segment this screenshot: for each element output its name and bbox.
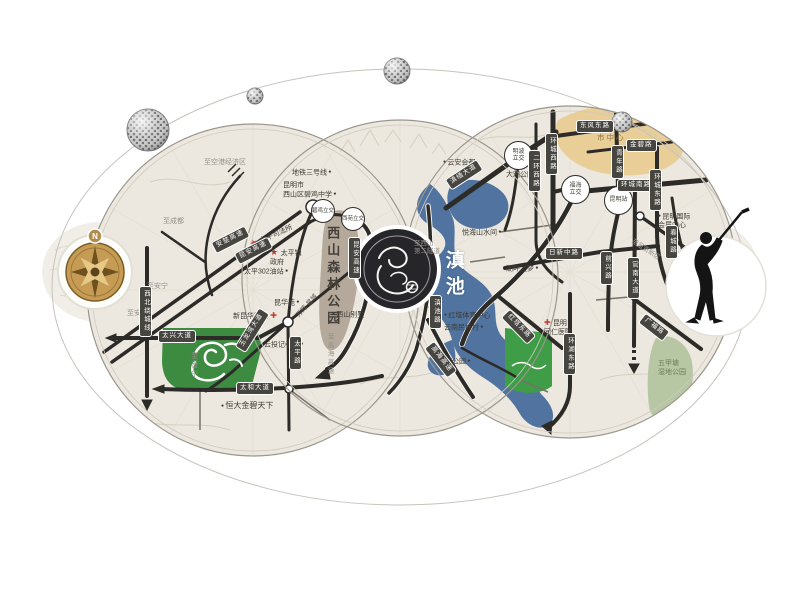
poi-kunhua-yuan: 昆华苑 <box>274 299 299 308</box>
direction-gaohai-expwy: 至高海高速 <box>325 333 333 376</box>
golf-ball-icon <box>384 58 410 84</box>
poi-biji-school: 昆明市 西山区碧鸡中学 <box>283 182 336 200</box>
location-map: N <box>0 0 800 600</box>
golf-ball-icon <box>127 109 169 151</box>
road-badge-dianchi-road: 滇池路 <box>430 296 441 328</box>
road-badge-qianxing: 前兴路 <box>601 252 612 284</box>
interchange-biji: 碧鸡立交 <box>311 199 335 223</box>
road-badge-huancheng-east: 环城东路 <box>650 170 661 210</box>
poi-xishan-villa: 西山别墅 <box>332 311 364 320</box>
direction-xishan-tunnel: 至西山 第二隧道 <box>414 240 440 256</box>
road-badge-rixin-middle: 日新中路 <box>546 248 582 259</box>
poi-taiping-oil-station: 太平302油站 <box>244 268 288 277</box>
road-badge-taiping-road: 太平路 <box>290 337 301 369</box>
label-city-center: 市中心 <box>597 133 626 142</box>
direction-airport-zone: 至空港经济区 <box>204 159 246 168</box>
poi-minzu-village: 云南民族村 <box>444 324 483 333</box>
golf-ball-icon <box>612 112 632 132</box>
road-badge-taihe-ave: 太和大道 <box>237 383 273 394</box>
road-badge-huanhu-east: 环湖东路 <box>564 334 575 374</box>
road-badge-guannan-ave: 官南大道 <box>628 258 639 298</box>
road-badge-taixing-ave: 太兴大道 <box>159 331 195 342</box>
road-badge-dongfeng-east: 东风东路 <box>577 121 613 132</box>
direction-jinning: 至晋宁 <box>189 352 198 379</box>
map-graphic: N <box>0 0 800 600</box>
poi-taiping-government: 太平镇 政府 <box>270 247 302 268</box>
road-badge-qingnian: 青年路 <box>612 146 623 178</box>
direction-chengdu: 至成都 <box>163 218 184 227</box>
road-badge-kunan-expwy-south: 昆安高速 <box>349 238 360 278</box>
compass-north-label: N <box>92 232 98 241</box>
poi-yuehai: 悦海山水间 <box>462 229 501 238</box>
road-badge-ring-nw: 西北绕城线 <box>140 287 151 336</box>
poi-metro-line-3: 地铁三号线 <box>292 169 331 178</box>
poi-hupan-dream: 湖畔之梦 <box>506 265 538 274</box>
road-badge-huancheng-south: 环城南路 <box>618 180 654 191</box>
road-badge-erhuan-west: 二环西路 <box>529 151 540 191</box>
interchange-xiyuan: 西苑立交 <box>341 207 365 231</box>
wetland-green <box>648 336 693 420</box>
poi-hengda-jinbi: 恒大金碧天下 <box>221 401 273 411</box>
poi-hongta-sports-center: 红塔体育中心 <box>444 312 490 321</box>
poi-wetland-park: 五甲塘 湿地公园 <box>658 360 686 378</box>
label-dianchi-lake: 滇池 <box>441 250 465 302</box>
project-emblem <box>353 225 441 313</box>
road-badge-huancheng-west: 环城西路 <box>546 134 557 174</box>
road-badge-chuncheng: 春城路 <box>666 226 677 258</box>
interchange-fuhai: 福海 立交 <box>561 175 590 204</box>
road-badge-jinbi: 金碧路 <box>627 140 656 151</box>
golf-ball-icon <box>247 88 263 104</box>
